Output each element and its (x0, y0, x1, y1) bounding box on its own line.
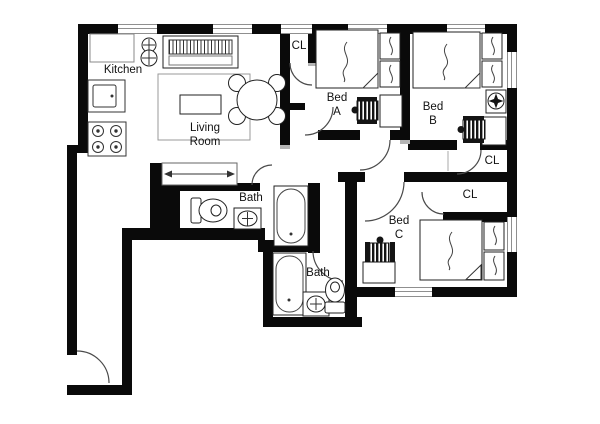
bathtub-lower (273, 253, 306, 315)
furniture-layer (0, 0, 600, 424)
bathtub-upper (274, 186, 308, 246)
bed-b-nightstands (482, 33, 502, 87)
dining-set (229, 75, 286, 125)
label-closet-bed-b: CL (478, 155, 506, 169)
bed-c-desk (363, 262, 395, 283)
closet-hall-door-arc (290, 63, 312, 85)
label-bed-b: Bed B (408, 101, 458, 128)
bed-b-bed (413, 32, 480, 88)
bath-upper-door-arc (252, 165, 272, 185)
label-kitchen: Kitchen (93, 64, 153, 78)
bed-b-desk-chair (458, 116, 486, 143)
stove (88, 122, 126, 156)
ceiling-fan-symbol (486, 90, 506, 113)
kitchen-label-text: Kitchen (104, 64, 142, 76)
bed-a-door-arc (360, 140, 390, 170)
label-living-room: Living Room (174, 122, 236, 149)
bed-b-desk (482, 117, 506, 145)
label-bath-lower: Bath (298, 267, 338, 281)
label-bed-a: Bed A (312, 92, 362, 119)
dining-table (237, 80, 277, 120)
bed-a-bed (316, 30, 378, 88)
coffee-table (180, 95, 221, 114)
label-closet-hall: CL (286, 40, 312, 54)
floor-plan: Kitchen Living Room CL Bed A Bed B CL CL… (0, 0, 600, 424)
sink-upper (234, 208, 261, 229)
label-bath-upper: Bath (231, 192, 271, 206)
sofa (163, 36, 238, 68)
label-bed-c: Bed C (374, 215, 424, 242)
bed-c-nightstands (484, 222, 504, 280)
toilet-upper (191, 198, 227, 223)
toilet-lower (325, 278, 345, 313)
label-closet-bed-c: CL (456, 189, 484, 203)
bed-a-desk (380, 95, 402, 127)
closet-bed-c-door-arc (422, 192, 444, 214)
bed-a-nightstands (380, 33, 400, 87)
entry-door-arc (77, 351, 109, 383)
kitchen-sink (88, 80, 125, 112)
floor-plant (141, 38, 157, 66)
sliding-door-closet (162, 163, 237, 185)
bed-c-bed (420, 220, 482, 280)
kitchen-counter (90, 34, 134, 62)
